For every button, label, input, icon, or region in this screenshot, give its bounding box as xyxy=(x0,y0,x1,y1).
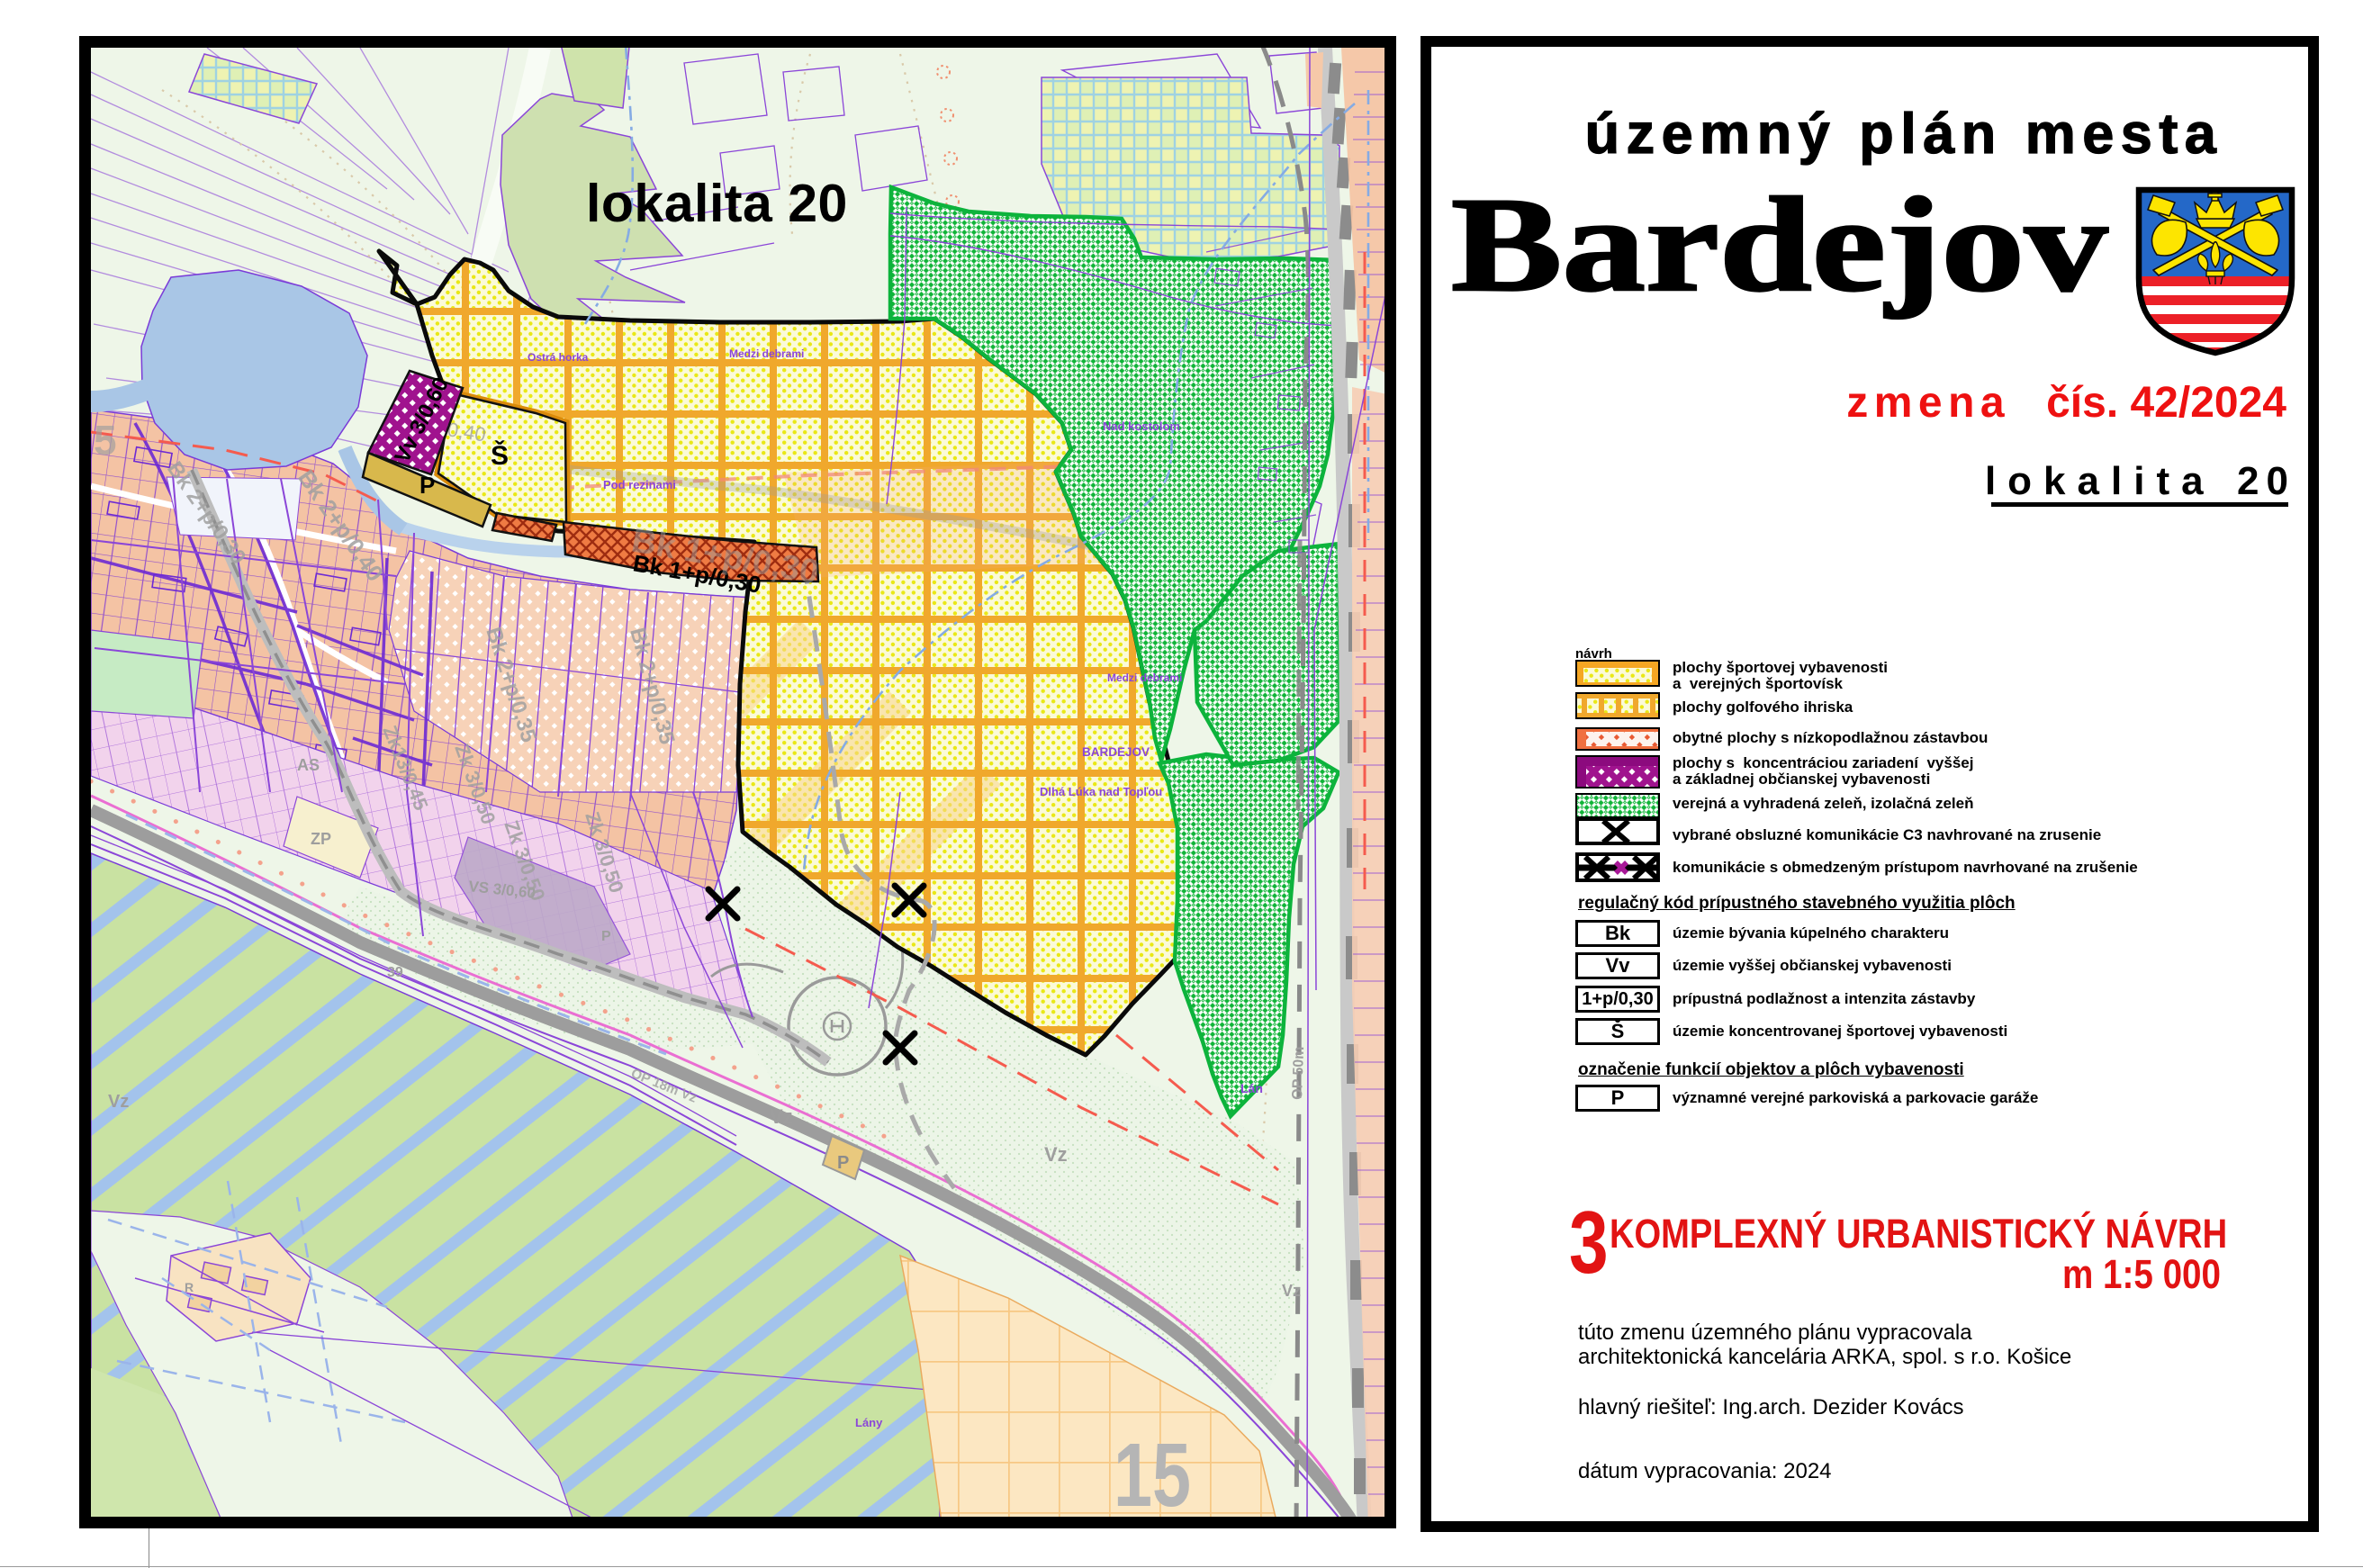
svg-text:Vz: Vz xyxy=(1044,1143,1068,1166)
svg-text:Vz: Vz xyxy=(770,1105,793,1128)
svg-text:39: 39 xyxy=(387,965,403,980)
svg-text:AS: AS xyxy=(297,756,320,774)
svg-text:5: 5 xyxy=(94,417,117,464)
svg-text:Vz: Vz xyxy=(1282,1282,1301,1300)
svg-text:Š: Š xyxy=(491,440,509,471)
svg-text:Ostrá horka: Ostrá horka xyxy=(528,351,589,364)
svg-text:OP 50m: OP 50m xyxy=(1290,1046,1307,1100)
svg-text:lokalita 20: lokalita 20 xyxy=(586,174,848,233)
svg-text:Vz: Vz xyxy=(108,1092,129,1112)
svg-text:BARDEJOV: BARDEJOV xyxy=(1082,745,1150,759)
svg-text:P: P xyxy=(419,472,435,499)
svg-text:P: P xyxy=(601,929,611,944)
svg-text:Medzi debrami: Medzi debrami xyxy=(1107,671,1182,684)
svg-text:ZP: ZP xyxy=(311,830,331,848)
svg-text:Lány: Lány xyxy=(855,1416,883,1429)
svg-text:Medzi debrami: Medzi debrami xyxy=(729,347,804,360)
svg-text:Dlhá Lúka nad Topľou: Dlhá Lúka nad Topľou xyxy=(1040,785,1162,798)
svg-text:P: P xyxy=(837,1153,849,1173)
svg-text:15: 15 xyxy=(1114,1425,1191,1526)
svg-text:R: R xyxy=(185,1280,194,1294)
svg-text:Lán: Lán xyxy=(1240,1081,1263,1095)
svg-text:Pod rezinami: Pod rezinami xyxy=(603,478,676,491)
svg-text:Nad kostolom: Nad kostolom xyxy=(1103,419,1180,433)
